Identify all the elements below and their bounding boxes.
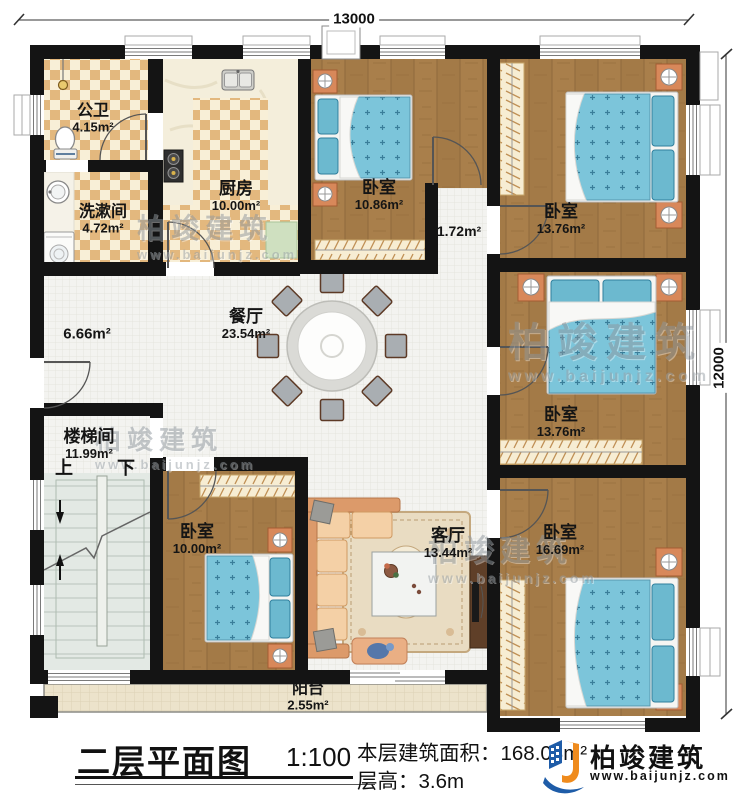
floor-height-line: 层高：3.6m: [357, 764, 464, 794]
floor-area-label: 本层建筑面积：: [357, 742, 501, 765]
room-label-dining: 餐厅 23.54m²: [222, 307, 270, 341]
room-label-hall-open: 6.66m²: [63, 325, 111, 342]
room-label-bedroom-bottom-left: 卧室 10.00m²: [173, 522, 221, 556]
room-label-balcony: 阳台 2.55m²: [287, 680, 328, 713]
living-room-set: [303, 498, 488, 664]
room-label-living-room: 客厅 13.44m²: [424, 526, 472, 560]
floor-height-label: 层高：: [357, 770, 419, 793]
dimension-height: 12000: [711, 343, 728, 393]
title-underline-thin: [75, 784, 375, 785]
room-label-bedroom-bottom-right: 卧室 16.69m²: [536, 523, 584, 557]
floor-plan-page: 13000 12000 柏竣建筑 www.baijunjz.com 柏竣建筑 w…: [0, 0, 750, 802]
room-label-bedroom-top-mid: 卧室 10.86m²: [355, 178, 403, 212]
brand-logo-icon: [541, 736, 588, 799]
dimension-width: 13000: [329, 11, 379, 28]
room-label-washroom: 洗漱间 4.72m²: [79, 203, 127, 236]
title-underline-thick: [75, 776, 353, 779]
room-label-public-bath: 公卫 4.15m²: [72, 102, 113, 135]
stairs-up-label: 上: [55, 454, 73, 480]
room-label-bedroom-top-right: 卧室 13.76m²: [537, 202, 585, 236]
room-label-kitchen: 厨房 10.00m²: [212, 179, 260, 213]
brand-website: www.baijunjz.com: [590, 769, 730, 783]
stairs-down-label: 下: [117, 454, 135, 480]
floor-height-value: 3.6m: [419, 770, 465, 793]
room-label-bedroom-mid-right: 卧室 13.76m²: [537, 405, 585, 439]
drawing-scale: 1:100: [286, 742, 351, 773]
room-label-hallway: 1.72m²: [437, 223, 481, 239]
